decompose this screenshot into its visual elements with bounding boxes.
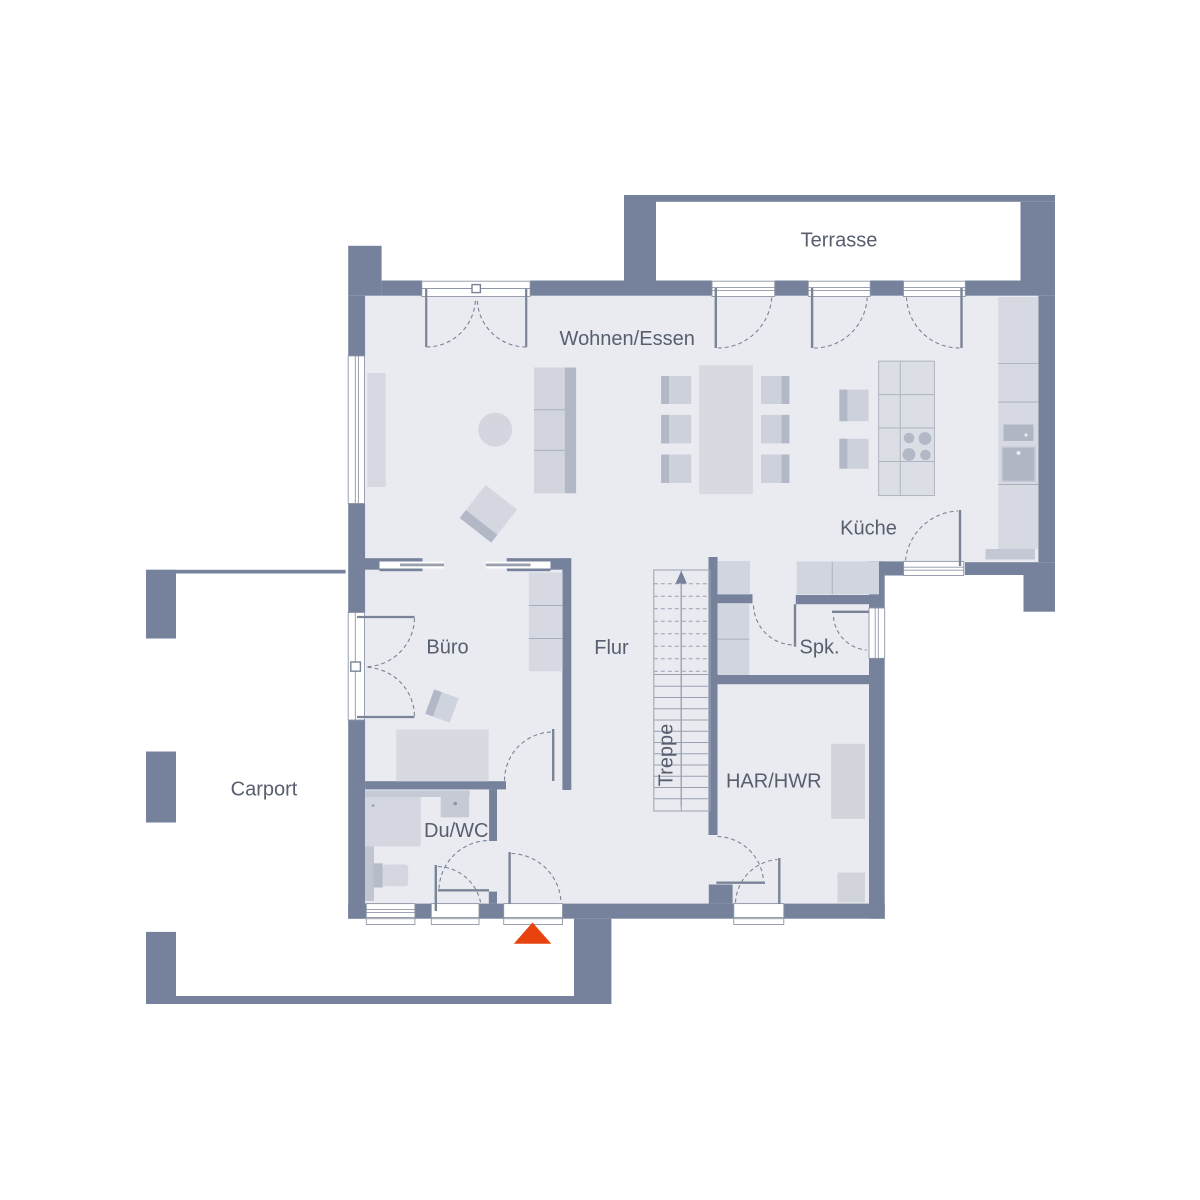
- svg-text:Büro: Büro: [426, 637, 468, 659]
- svg-text:Du/WC: Du/WC: [424, 820, 488, 842]
- svg-text:Carport: Carport: [231, 779, 298, 801]
- svg-text:Wohnen/Essen: Wohnen/Essen: [560, 328, 695, 350]
- svg-text:Flur: Flur: [594, 637, 629, 659]
- svg-text:Spk.: Spk.: [799, 637, 839, 659]
- svg-text:Treppe: Treppe: [656, 724, 678, 787]
- svg-text:Küche: Küche: [840, 518, 897, 540]
- svg-text:HAR/HWR: HAR/HWR: [726, 771, 822, 793]
- svg-text:Terrasse: Terrasse: [801, 230, 878, 252]
